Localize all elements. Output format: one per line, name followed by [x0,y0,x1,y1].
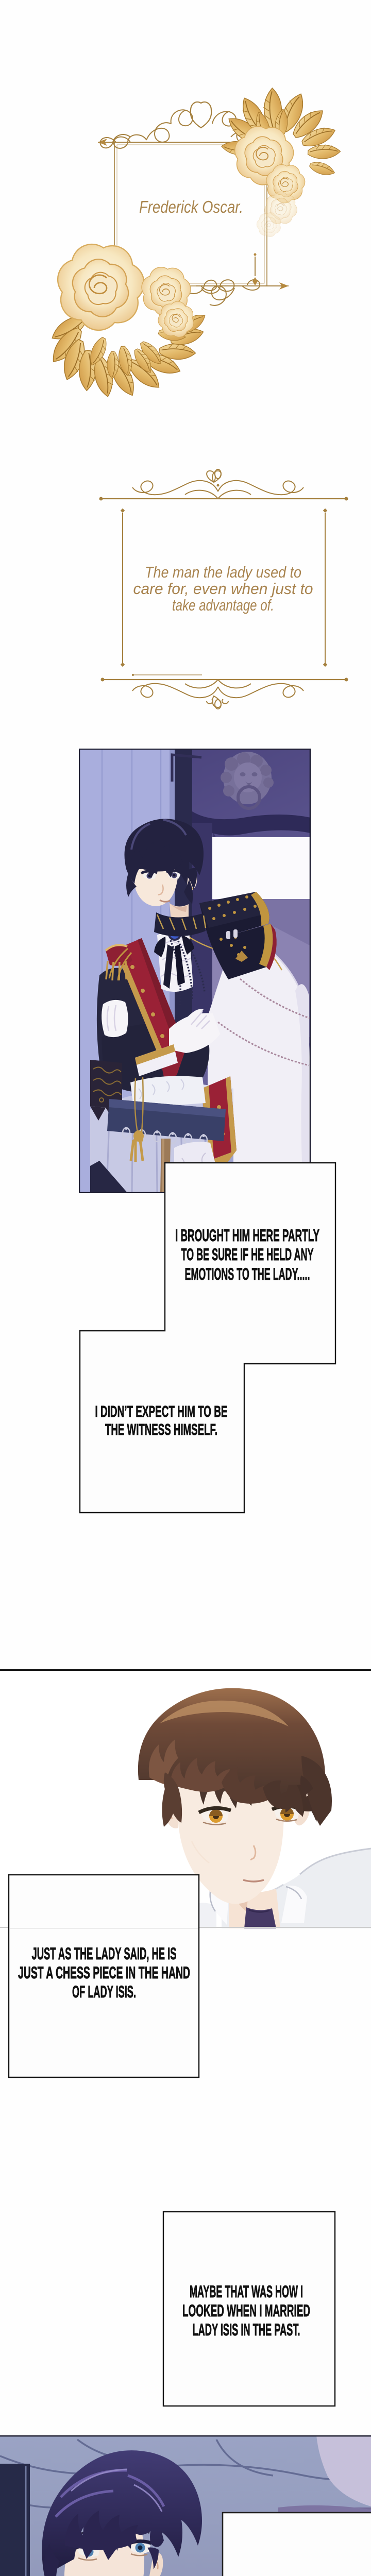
svg-text:I DIDN’T EXPECT HIM TO BE: I DIDN’T EXPECT HIM TO BE [95,1402,228,1420]
svg-text:TO BE SURE IF HE HELD ANY: TO BE SURE IF HE HELD ANY [181,1245,314,1264]
svg-text:JUST AS THE LADY SAID, HE IS: JUST AS THE LADY SAID, HE IS [32,1944,177,1963]
svg-text:LOOKED WHEN I MARRIED: LOOKED WHEN I MARRIED [182,2301,310,2320]
svg-text:JUST A CHESS PIECE IN THE HAND: JUST A CHESS PIECE IN THE HAND [18,1963,190,1982]
svg-text:I BROUGHT HIM HERE PARTLY: I BROUGHT HIM HERE PARTLY [175,1226,319,1245]
svg-text:MAYBE THAT WAS HOW I: MAYBE THAT WAS HOW I [190,2282,303,2301]
svg-text:LADY ISIS IN THE PAST.: LADY ISIS IN THE PAST. [193,2320,300,2339]
svg-text:OF LADY ISIS.: OF LADY ISIS. [72,1982,136,2001]
svg-text:EMOTIONS TO THE LADY.....: EMOTIONS TO THE LADY..... [185,1265,310,1283]
svg-text:THE WITNESS HIMSELF.: THE WITNESS HIMSELF. [105,1420,217,1438]
